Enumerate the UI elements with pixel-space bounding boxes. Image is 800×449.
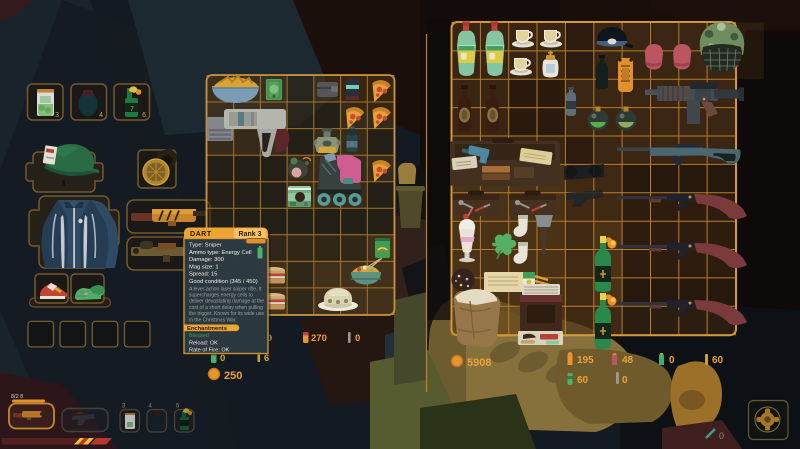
svg-text:in the Christmas War.: in the Christmas War. (189, 317, 237, 323)
svg-text:60: 60 (712, 355, 724, 366)
svg-text:6: 6 (142, 112, 146, 119)
svg-text:60: 60 (577, 375, 589, 386)
svg-text:195: 195 (577, 355, 594, 366)
svg-text:deliver devastating damage at: deliver devastating damage at the (189, 299, 264, 305)
svg-text:48: 48 (622, 355, 634, 366)
svg-text:4: 4 (99, 112, 103, 119)
svg-text:Spread: 15: Spread: 15 (189, 272, 217, 278)
svg-text:250: 250 (224, 370, 242, 382)
svg-text:Rank 3: Rank 3 (239, 231, 262, 238)
svg-text:Damage: 300: Damage: 300 (189, 257, 224, 263)
svg-text:0: 0 (669, 355, 675, 366)
svg-text:Blessed: Blessed (189, 333, 209, 339)
svg-text:270: 270 (311, 333, 327, 344)
svg-text:A lever-action laser sniper ri: A lever-action laser sniper rifle. It (189, 286, 262, 292)
svg-text:Type: Sniper: Type: Sniper (189, 243, 222, 249)
svg-text:the trigger. Known for its wid: the trigger. Known for its wide use (189, 311, 264, 317)
svg-text:0: 0 (622, 375, 628, 386)
svg-text:cost of a short delay when pul: cost of a short delay when pulling (189, 305, 263, 311)
svg-text:0: 0 (355, 333, 360, 344)
svg-text:Ammo type: Energy Cell: Ammo type: Energy Cell (189, 250, 252, 256)
svg-text:Rate of Fire: OK: Rate of Fire: OK (189, 348, 230, 354)
svg-text:Mag size: 1: Mag size: 1 (189, 264, 219, 270)
svg-text:Enchantments: Enchantments (187, 326, 227, 332)
svg-text:8/2 8: 8/2 8 (11, 394, 23, 400)
svg-text:5908: 5908 (467, 357, 491, 369)
svg-text:Good condition (345 / 450): Good condition (345 / 450) (189, 279, 258, 285)
svg-text:0: 0 (719, 431, 724, 441)
svg-text:DART: DART (190, 229, 212, 238)
svg-text:3: 3 (55, 112, 59, 119)
svg-text:Reload: OK: Reload: OK (189, 341, 218, 347)
svg-text:supercharges energy cells to: supercharges energy cells to (189, 293, 253, 299)
